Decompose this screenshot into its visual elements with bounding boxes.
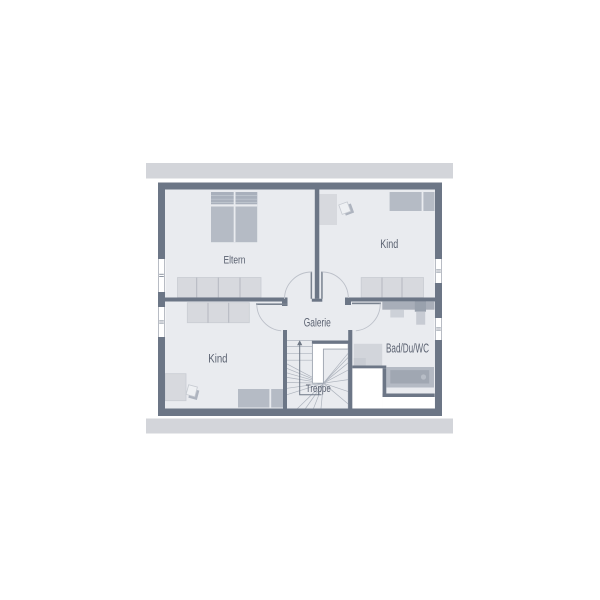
svg-text:Galerie: Galerie bbox=[304, 315, 331, 329]
svg-text:Kind: Kind bbox=[380, 239, 398, 251]
svg-text:Kind: Kind bbox=[208, 354, 227, 366]
svg-text:Eltern: Eltern bbox=[224, 255, 246, 267]
svg-text:Bad/Du/WC: Bad/Du/WC bbox=[386, 340, 429, 355]
svg-text:Treppe: Treppe bbox=[306, 383, 331, 395]
